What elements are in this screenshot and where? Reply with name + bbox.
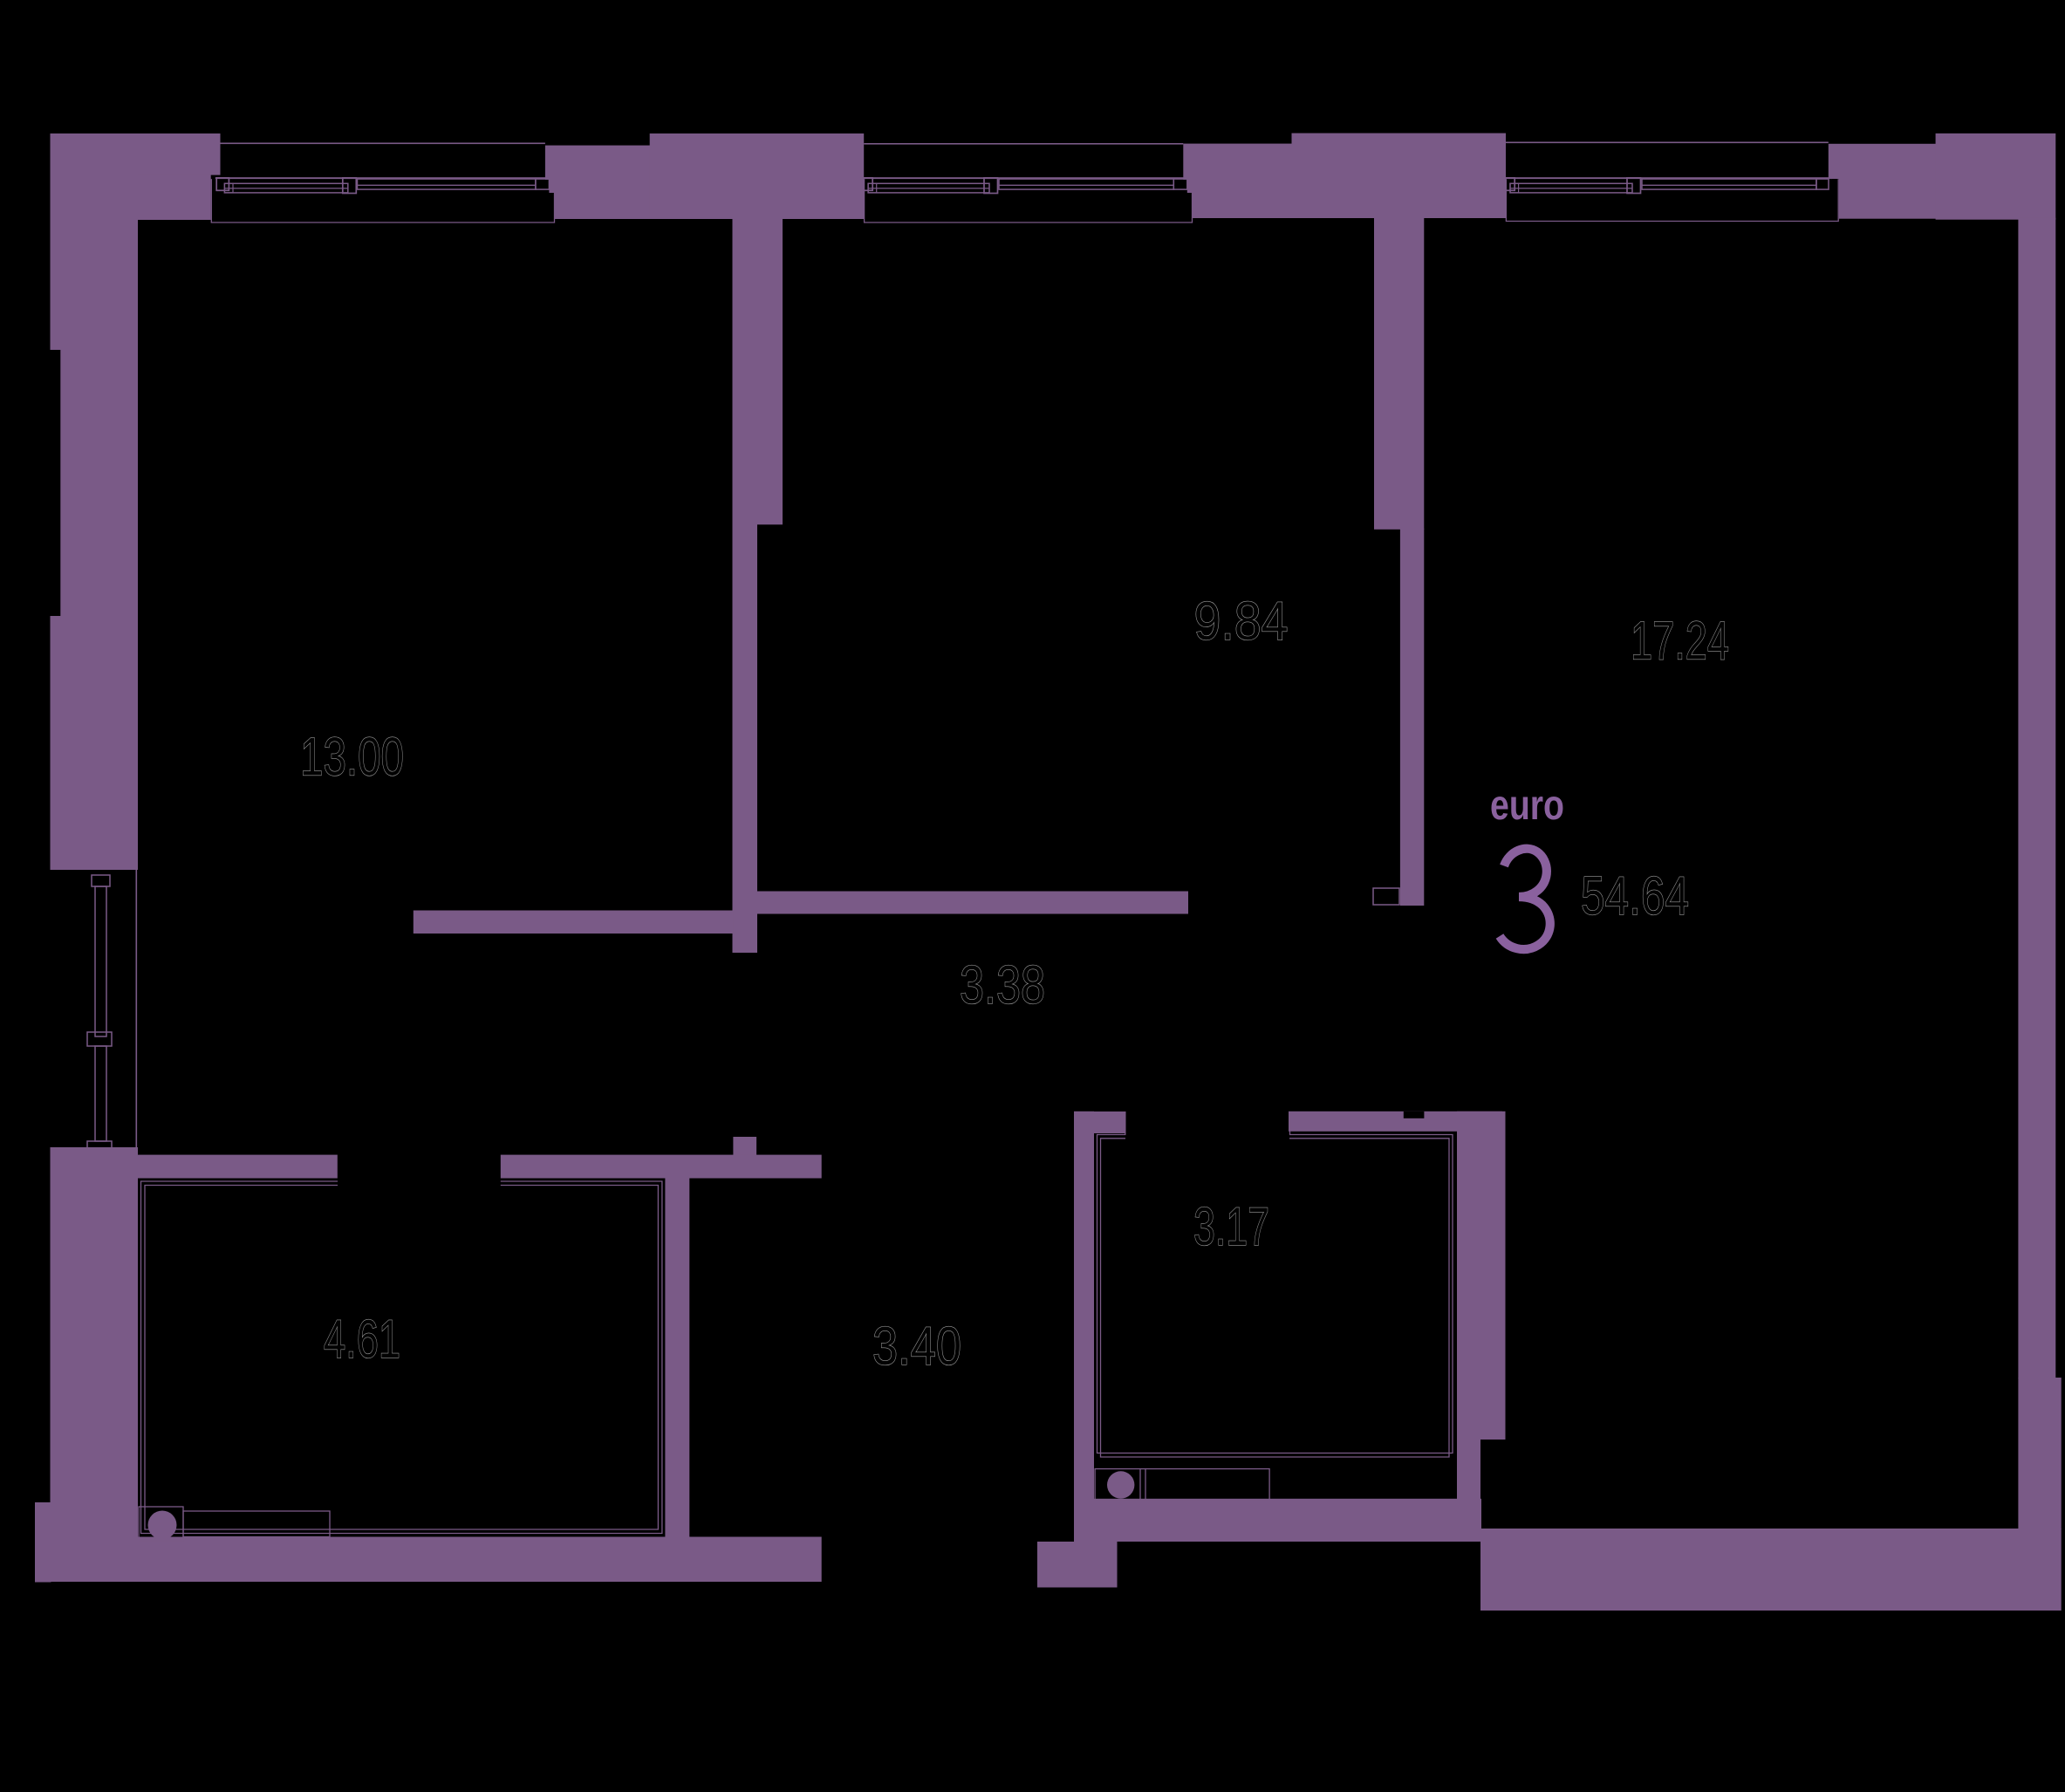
svg-text:3.40: 3.40 (872, 1317, 961, 1377)
svg-text:17.24: 17.24 (1631, 611, 1729, 671)
svg-text:3.17: 3.17 (1193, 1197, 1269, 1257)
svg-text:euro: euro (1490, 783, 1564, 829)
svg-text:13.00: 13.00 (300, 728, 404, 788)
svg-text:3.38: 3.38 (960, 955, 1045, 1016)
svg-text:54.64: 54.64 (1581, 866, 1689, 927)
svg-text:4.61: 4.61 (324, 1310, 400, 1370)
svg-text:9.84: 9.84 (1194, 592, 1289, 652)
